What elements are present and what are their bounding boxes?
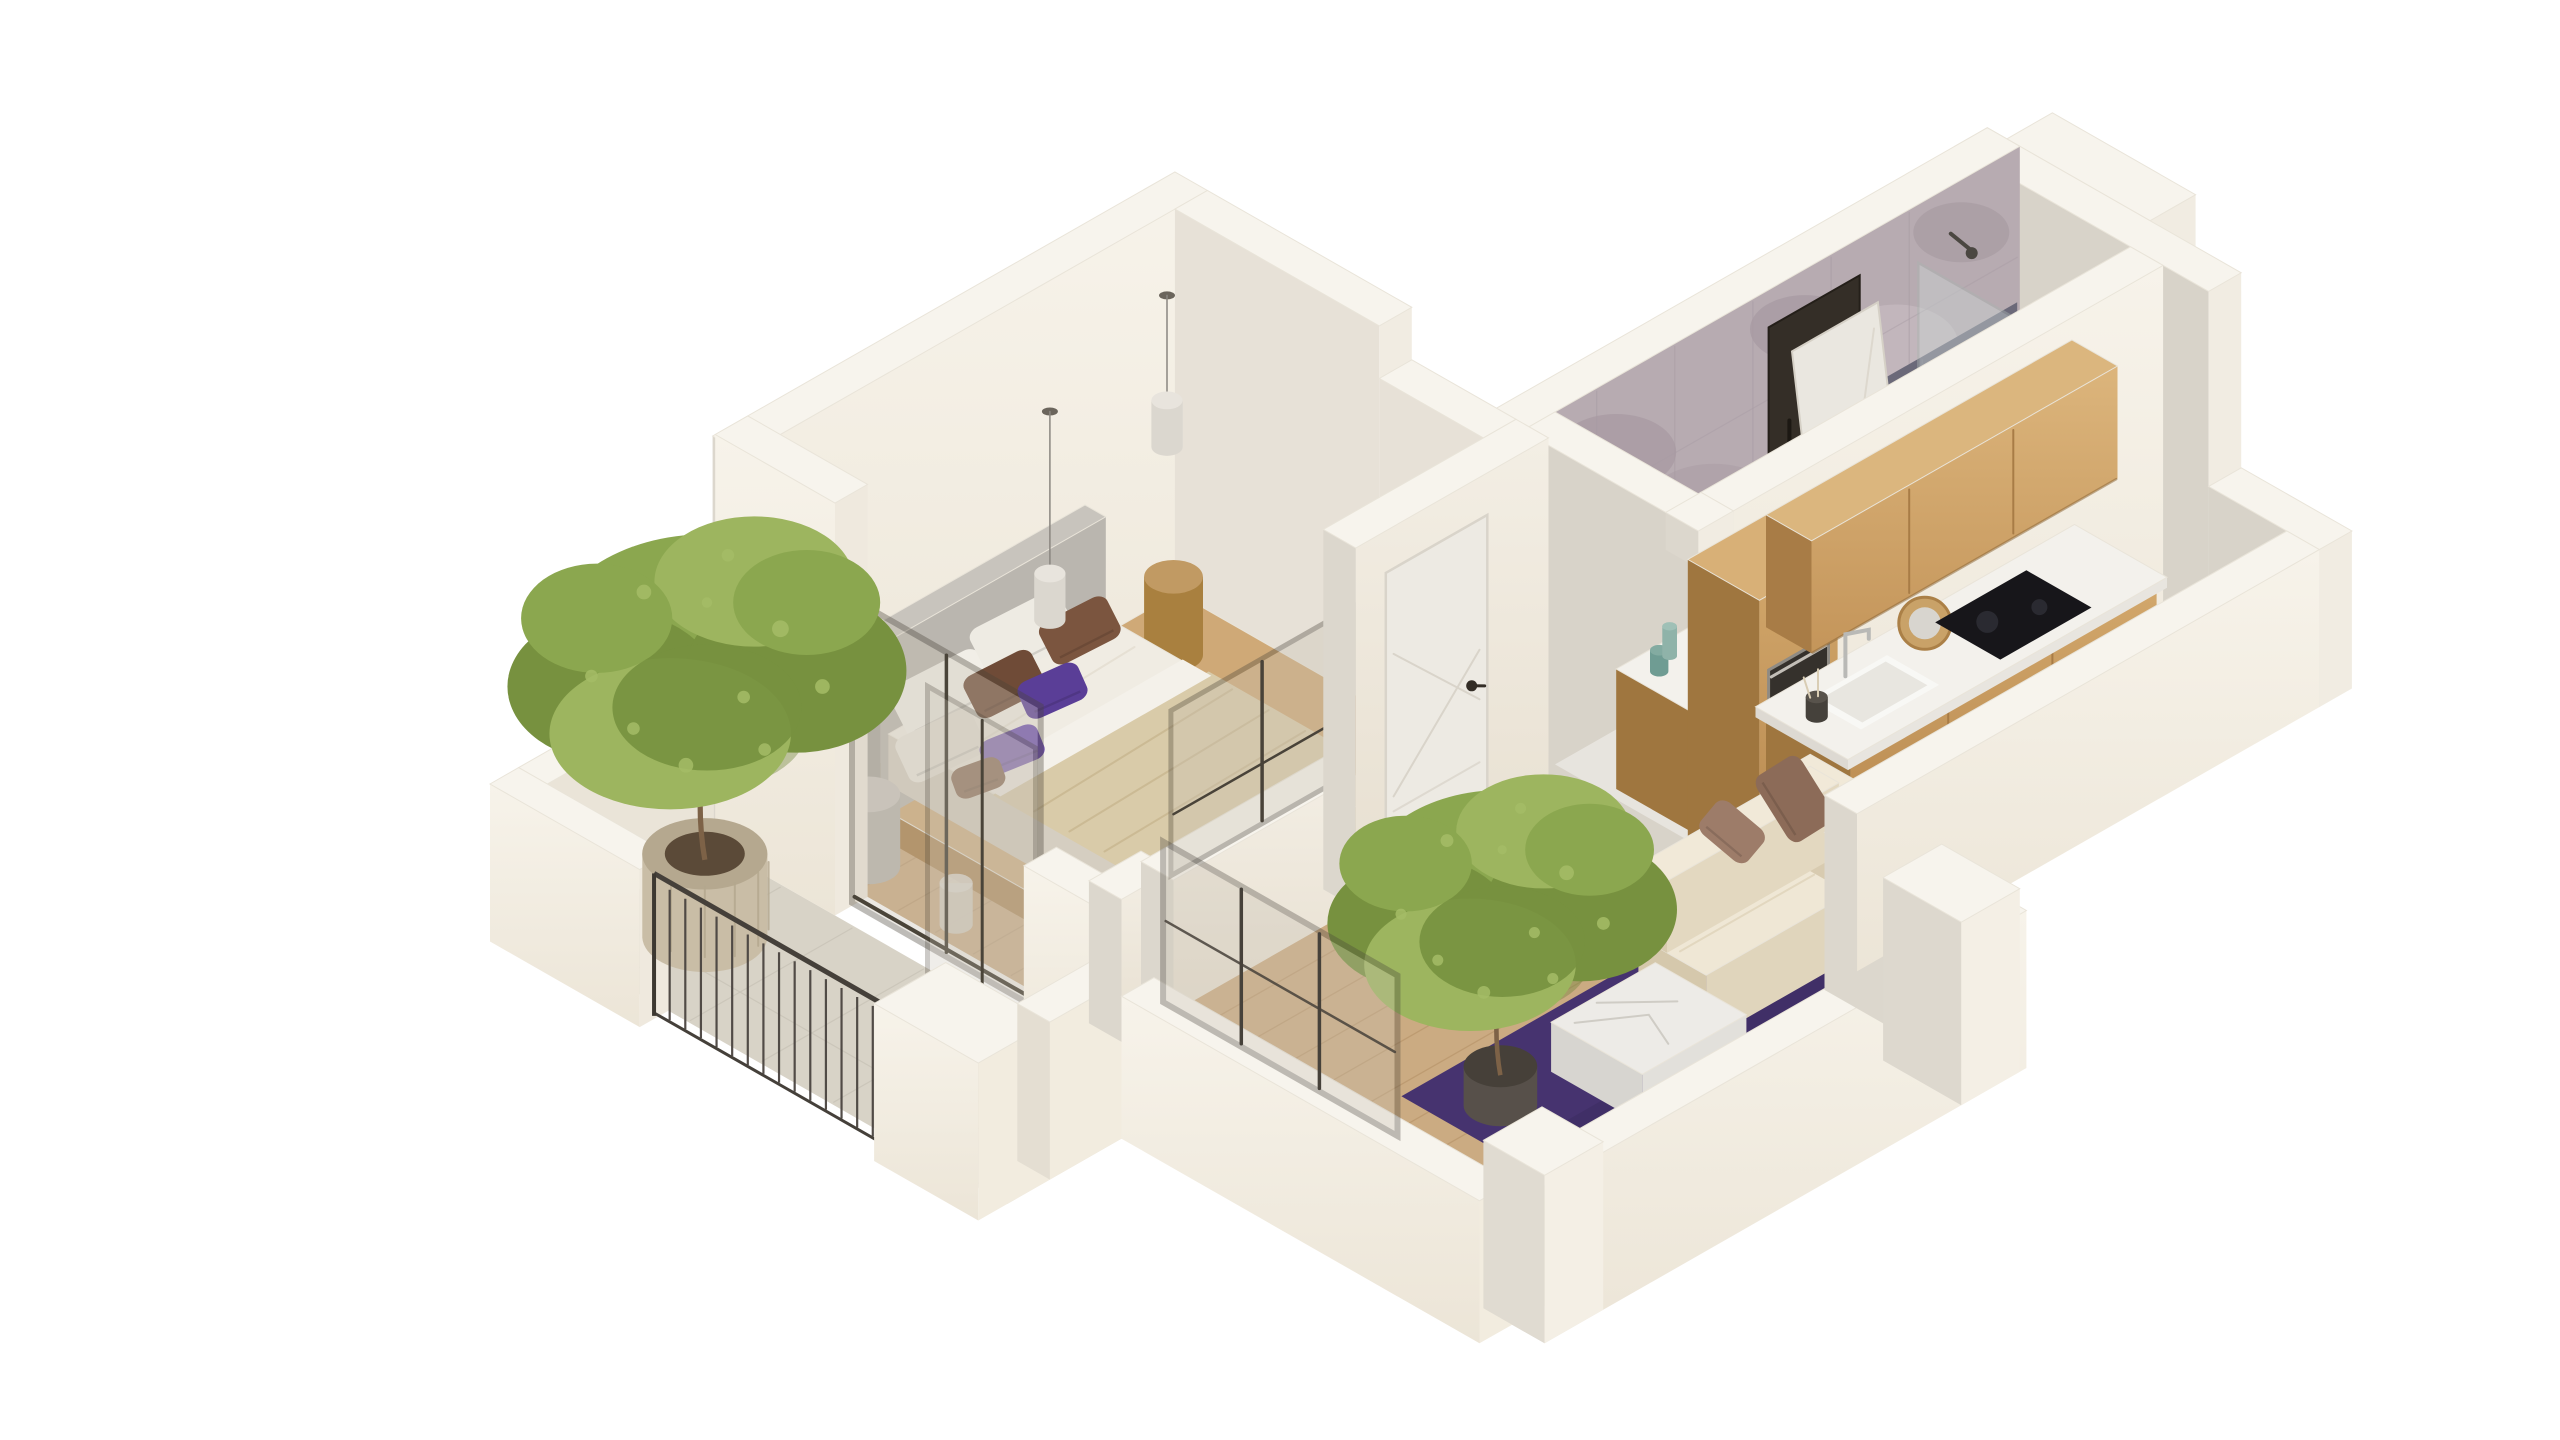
apartment-render-stage: 3D isometric apartment floor plan render (0, 0, 2560, 1440)
round-board-mirror (1909, 607, 1941, 639)
front-wall-corner-post (1483, 1107, 1603, 1344)
marble-blotch (1913, 202, 2009, 262)
pendant-shade (1151, 392, 1182, 456)
pendant-shade (1034, 565, 1065, 629)
marble-vein (1597, 1001, 1678, 1002)
shower-head-disc (1966, 247, 1978, 259)
tree-pot (1464, 1045, 1538, 1126)
front-wall-column (1883, 844, 2020, 1105)
cooktop-burner (2031, 599, 2047, 615)
soap-bottle (1662, 622, 1677, 660)
cooktop-burner (1976, 611, 1998, 633)
apartment-3d-floorplan (0, 0, 2560, 1440)
